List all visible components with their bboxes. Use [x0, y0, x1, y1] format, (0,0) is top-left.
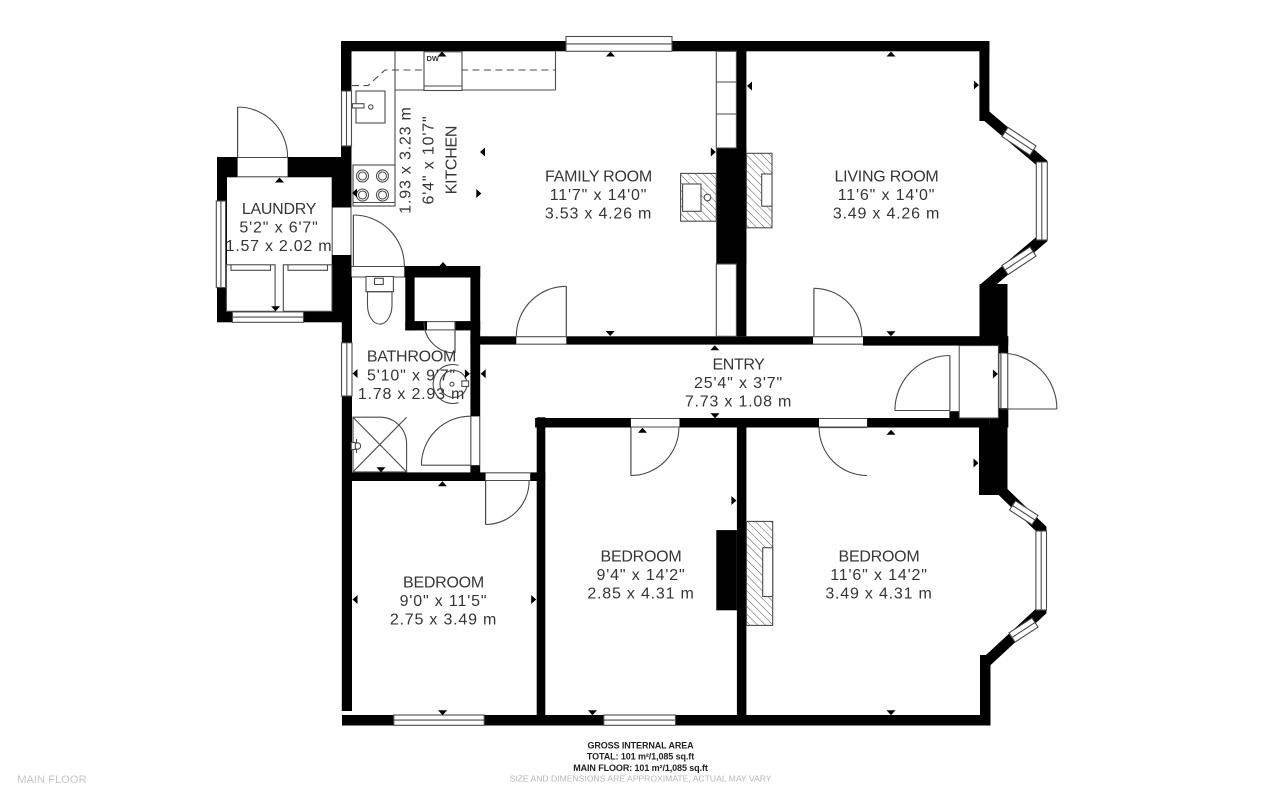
svg-text:5'10" x 9'7": 5'10" x 9'7"	[367, 367, 456, 384]
svg-text:6'4" x 10'7": 6'4" x 10'7"	[421, 115, 438, 204]
svg-text:3.49 x 4.31 m: 3.49 x 4.31 m	[825, 586, 932, 603]
svg-text:BEDROOM: BEDROOM	[601, 549, 682, 566]
svg-text:3.49 x 4.26 m: 3.49 x 4.26 m	[833, 206, 940, 223]
svg-text:MAIN FLOOR: 101 m²/1,085 sq.ft: MAIN FLOOR: 101 m²/1,085 sq.ft	[573, 763, 708, 773]
svg-text:KITCHEN: KITCHEN	[444, 126, 461, 194]
svg-text:2.75 x 3.49 m: 2.75 x 3.49 m	[390, 612, 497, 629]
svg-text:25'4" x 3'7": 25'4" x 3'7"	[694, 375, 783, 392]
svg-text:FAMILY ROOM: FAMILY ROOM	[545, 169, 652, 186]
svg-text:1.57 x 2.02 m: 1.57 x 2.02 m	[226, 238, 333, 255]
svg-text:BEDROOM: BEDROOM	[839, 549, 920, 566]
svg-text:MAIN FLOOR: MAIN FLOOR	[17, 774, 86, 786]
svg-text:GROSS INTERNAL AREA: GROSS INTERNAL AREA	[587, 741, 694, 751]
svg-text:BEDROOM: BEDROOM	[403, 575, 484, 592]
svg-text:11'6" x 14'0": 11'6" x 14'0"	[838, 187, 936, 204]
svg-text:1.93 x 3.23 m: 1.93 x 3.23 m	[398, 106, 415, 213]
svg-text:DW: DW	[427, 54, 440, 63]
svg-text:7.73 x 1.08 m: 7.73 x 1.08 m	[685, 394, 792, 411]
svg-text:11'6" x 14'2": 11'6" x 14'2"	[830, 567, 928, 584]
svg-text:3.53 x 4.26 m: 3.53 x 4.26 m	[545, 206, 652, 223]
svg-text:BATHROOM: BATHROOM	[367, 349, 456, 366]
svg-text:2.85 x 4.31 m: 2.85 x 4.31 m	[587, 586, 694, 603]
svg-text:9'0" x 11'5": 9'0" x 11'5"	[400, 593, 488, 610]
svg-text:SIZE AND DIMENSIONS ARE APPROX: SIZE AND DIMENSIONS ARE APPROXIMATE, ACT…	[509, 774, 771, 784]
svg-text:LIVING ROOM: LIVING ROOM	[835, 169, 939, 186]
svg-text:9'4" x 14'2": 9'4" x 14'2"	[596, 567, 685, 584]
svg-text:11'7" x 14'0": 11'7" x 14'0"	[550, 187, 648, 204]
svg-text:ENTRY: ENTRY	[713, 357, 766, 374]
svg-text:TOTAL: 101 m²/1,085 sq.ft: TOTAL: 101 m²/1,085 sq.ft	[587, 752, 694, 762]
svg-text:LAUNDRY: LAUNDRY	[242, 201, 317, 218]
svg-text:1.78 x 2.93 m: 1.78 x 2.93 m	[358, 386, 465, 403]
svg-text:5'2" x 6'7": 5'2" x 6'7"	[239, 219, 318, 236]
